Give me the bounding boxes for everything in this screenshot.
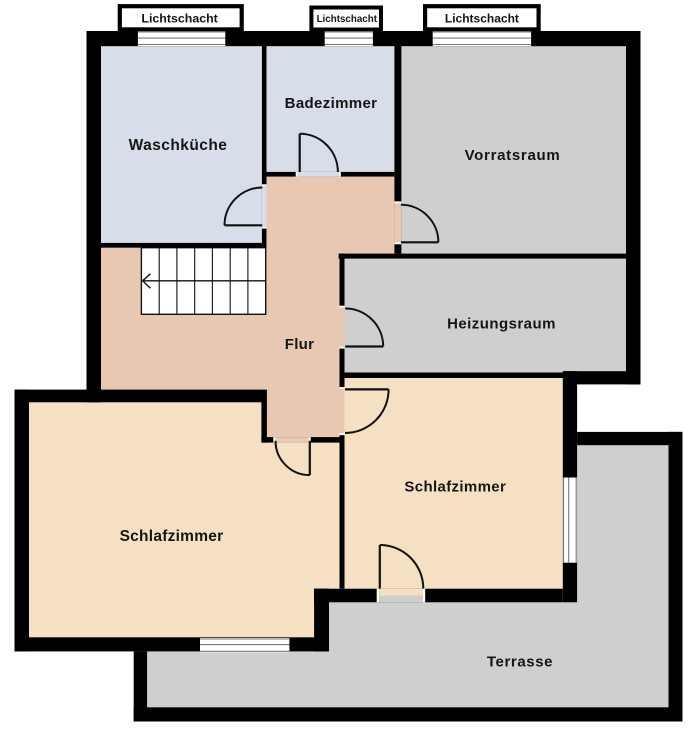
svg-text:Schlafzimmer: Schlafzimmer [404, 479, 506, 496]
svg-text:Vorratsraum: Vorratsraum [465, 147, 561, 164]
svg-text:Waschküche: Waschküche [129, 137, 228, 154]
svg-text:Schlafzimmer: Schlafzimmer [120, 528, 224, 545]
svg-text:Heizungsraum: Heizungsraum [447, 316, 556, 333]
svg-text:Lichtschacht: Lichtschacht [317, 14, 378, 25]
svg-text:Flur: Flur [285, 336, 315, 353]
svg-text:Badezimmer: Badezimmer [285, 95, 378, 112]
svg-text:Lichtschacht: Lichtschacht [445, 11, 519, 25]
svg-text:Lichtschacht: Lichtschacht [141, 12, 217, 26]
svg-text:Terrasse: Terrasse [487, 654, 553, 671]
